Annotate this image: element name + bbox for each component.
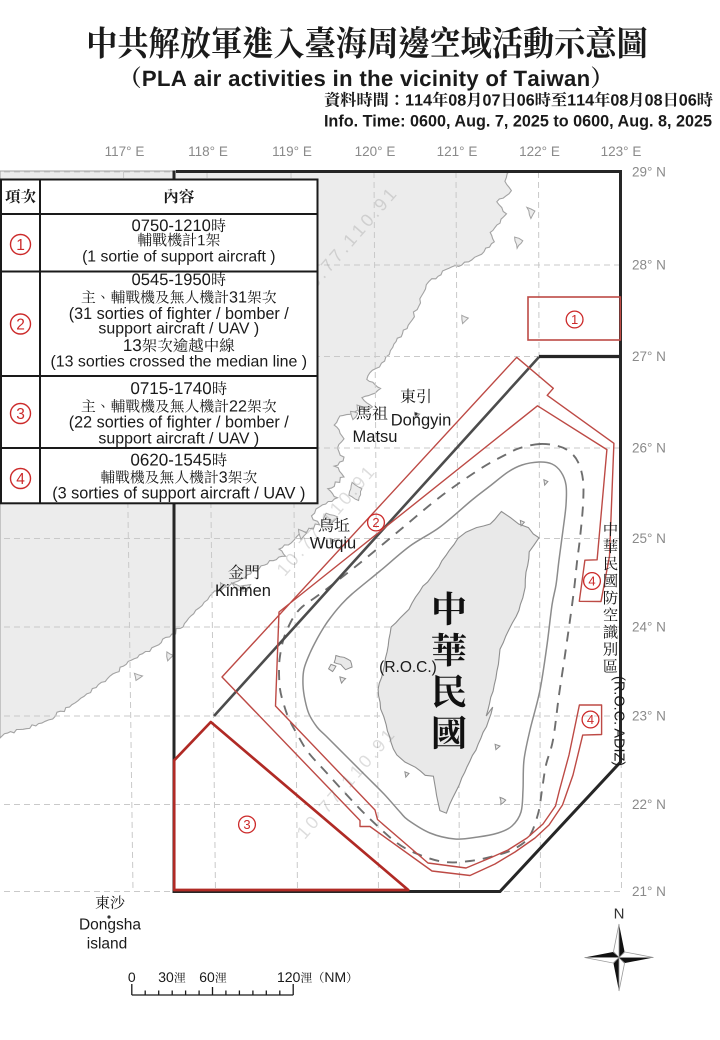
svg-text:4: 4 — [588, 574, 595, 589]
svg-text:21° N: 21° N — [632, 884, 666, 899]
svg-text:Info. Time: 0600, Aug. 7, 2025: Info. Time: 0600, Aug. 7, 2025 to 0600, … — [324, 113, 712, 131]
svg-text:122° E: 122° E — [519, 144, 560, 159]
svg-text:121° E: 121° E — [437, 144, 478, 159]
svg-text:2: 2 — [372, 515, 379, 530]
svg-text:(13 sorties crossed the median: (13 sorties crossed the median line ) — [50, 354, 307, 371]
svg-text:(3 sorties of support aircraf: (3 sorties of support aircraft / UAV ) — [52, 485, 305, 503]
svg-text:29° N: 29° N — [632, 165, 666, 180]
svg-text:119° E: 119° E — [272, 144, 312, 159]
svg-text:123° E: 123° E — [601, 144, 642, 159]
svg-text:3: 3 — [16, 406, 25, 423]
svg-text:118° E: 118° E — [188, 144, 228, 159]
svg-text:N: N — [614, 906, 625, 923]
svg-text:22° N: 22° N — [632, 797, 666, 812]
svg-text:Dongsha: Dongsha — [79, 917, 141, 934]
svg-text:4: 4 — [587, 712, 594, 727]
svg-text:support aircraft / UAV ): support aircraft / UAV ) — [98, 321, 259, 338]
svg-text:Matsu: Matsu — [353, 428, 398, 446]
svg-text:Kinmen: Kinmen — [215, 582, 271, 600]
svg-text:23° N: 23° N — [632, 709, 666, 724]
svg-text:Dongyin: Dongyin — [391, 412, 452, 430]
svg-text:2: 2 — [16, 317, 25, 334]
svg-text:117° E: 117° E — [105, 144, 145, 159]
svg-text:0: 0 — [128, 969, 136, 985]
svg-text:(22 sorties of fighter / bomb: (22 sorties of fighter / bomber / — [69, 414, 290, 432]
svg-text:27° N: 27° N — [632, 349, 666, 364]
svg-text:120° E: 120° E — [355, 144, 396, 159]
svg-text:28° N: 28° N — [632, 258, 666, 273]
svg-text:24° N: 24° N — [632, 620, 666, 635]
svg-text:25° N: 25° N — [632, 531, 666, 546]
svg-text:3: 3 — [243, 817, 250, 832]
svg-text:island: island — [87, 936, 128, 953]
svg-text:1: 1 — [571, 312, 578, 327]
svg-text:26° N: 26° N — [632, 441, 666, 456]
svg-text:(R.O.C.): (R.O.C.) — [379, 659, 437, 676]
svg-text:(R.O.C. ADIZ): (R.O.C. ADIZ) — [611, 676, 627, 766]
svg-text:support aircraft / UAV ): support aircraft / UAV ) — [98, 431, 259, 448]
svg-text:(1 sortie of support aircraft: (1 sortie of support aircraft ) — [82, 249, 275, 266]
svg-text:4: 4 — [16, 471, 25, 488]
svg-text:1: 1 — [16, 237, 25, 254]
